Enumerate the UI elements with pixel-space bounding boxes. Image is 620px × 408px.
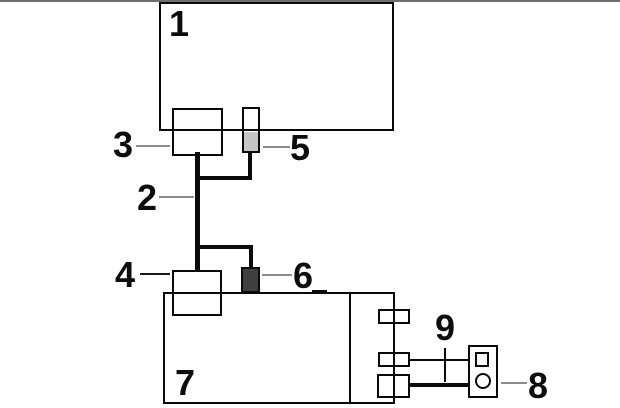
callout-label-1: 1 [169, 6, 189, 42]
callout-4-pointer-line [140, 273, 170, 275]
diagram-canvas: 1 3 5 2 4 6 7 9 8 [0, 0, 620, 408]
callout-3-pointer-line [136, 145, 170, 147]
callout-9-pointer-line [444, 348, 446, 382]
device-8-square-indicator [475, 352, 489, 367]
callout-8-pointer-line [501, 382, 527, 384]
device-8-round-button [475, 373, 491, 389]
callout-2-pointer-line [159, 196, 194, 198]
unit-7-port-middle [378, 352, 410, 367]
callout-label-3: 3 [113, 127, 133, 163]
unit-7-divider-line [349, 292, 351, 404]
callout-6-pointer-line [262, 274, 292, 276]
callout-label-6: 6 [293, 258, 313, 294]
cable-branch-to-plug-6-vertical [249, 245, 253, 269]
callout-label-4: 4 [115, 257, 135, 293]
plug-6-box [241, 267, 260, 293]
callout-label-2: 2 [137, 180, 157, 216]
callout-label-7: 7 [175, 365, 195, 401]
callout-5-pointer-line [263, 146, 290, 148]
wire-thick-line [410, 383, 469, 387]
unit-7-port-top [378, 309, 410, 324]
cable-2-line [195, 152, 200, 272]
plug-5-box [242, 107, 260, 153]
unit-7-port-bottom [377, 374, 410, 398]
connector-3-box [172, 108, 223, 156]
cable-branch-to-plug-6-horizontal [197, 245, 253, 249]
wire-9-thin-line [410, 359, 469, 361]
unit-7-box [163, 292, 395, 404]
unit-7-top-notch [312, 290, 327, 294]
cable-branch-to-plug-5-horizontal [197, 176, 252, 180]
callout-label-9: 9 [435, 310, 455, 346]
callout-label-5: 5 [290, 130, 310, 166]
callout-label-8: 8 [528, 368, 548, 404]
